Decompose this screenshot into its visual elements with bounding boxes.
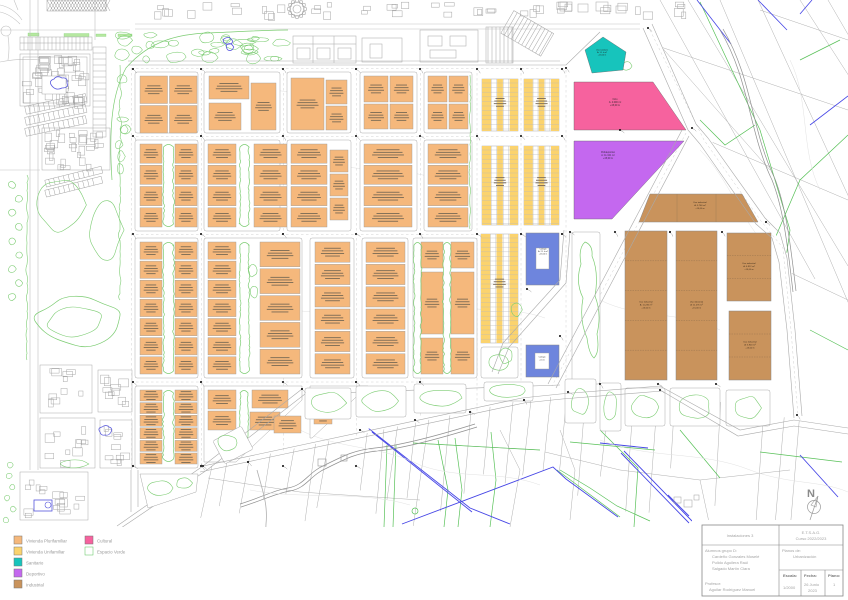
svg-text:A: 5.920 m²: A: 5.920 m² bbox=[744, 344, 756, 347]
svg-text:Fecha:: Fecha: bbox=[804, 573, 817, 578]
svg-text:A: 6.912 m²: A: 6.912 m² bbox=[743, 265, 755, 268]
svg-text:1/2000: 1/2000 bbox=[783, 585, 796, 590]
svg-text:Curso 2022/2023: Curso 2022/2023 bbox=[796, 536, 827, 541]
svg-text:Uso industrial: Uso industrial bbox=[743, 341, 757, 344]
svg-text:+15,00 m: +15,00 m bbox=[598, 55, 607, 57]
svg-text:26 Junio: 26 Junio bbox=[804, 582, 820, 587]
svg-text:+15,00 m: +15,00 m bbox=[744, 269, 753, 271]
svg-text:Espacio Verde: Espacio Verde bbox=[97, 550, 126, 555]
svg-text:A: 5.746 m²: A: 5.746 m² bbox=[694, 204, 706, 207]
svg-text:Uso sanitario: Uso sanitario bbox=[596, 48, 609, 51]
svg-text:Sanitario: Sanitario bbox=[26, 561, 44, 566]
svg-text:Aguilar Rodríguez Manuel: Aguilar Rodríguez Manuel bbox=[709, 587, 755, 592]
svg-text:+15,00 m: +15,00 m bbox=[610, 104, 620, 107]
svg-text:+15,00 m: +15,00 m bbox=[695, 208, 704, 210]
svg-text:A: 11.276 m²: A: 11.276 m² bbox=[690, 304, 703, 307]
svg-text:+15,00 m: +15,00 m bbox=[692, 307, 701, 309]
svg-text:Cardeño Gonzales Moselé: Cardeño Gonzales Moselé bbox=[712, 554, 760, 559]
svg-text:Planos de:: Planos de: bbox=[782, 548, 801, 553]
svg-text:Instalaciones 3: Instalaciones 3 bbox=[727, 533, 754, 538]
svg-text:A: 1.1 k m²: A: 1.1 k m² bbox=[597, 51, 607, 54]
svg-text:Uso industrial: Uso industrial bbox=[693, 201, 707, 204]
svg-text:Uso industrial: Uso industrial bbox=[639, 301, 653, 304]
svg-text:Escala:: Escala: bbox=[783, 573, 797, 578]
svg-text:Industrial: Industrial bbox=[26, 583, 44, 588]
svg-text:E.T.S.A.G.: E.T.S.A.G. bbox=[802, 530, 821, 535]
svg-text:Urbanización: Urbanización bbox=[793, 554, 816, 559]
svg-text:N: N bbox=[807, 488, 815, 500]
svg-text:Pulido Aguilera Raúl: Pulido Aguilera Raúl bbox=[712, 560, 748, 565]
svg-text:Uso industrial: Uso industrial bbox=[742, 262, 756, 265]
svg-text:+15,00 m: +15,00 m bbox=[745, 347, 754, 349]
svg-text:Uso industrial: Uso industrial bbox=[690, 301, 704, 304]
svg-text:Plano:: Plano: bbox=[828, 573, 840, 578]
svg-text:+15,00 m: +15,00 m bbox=[603, 157, 613, 160]
svg-text:2023: 2023 bbox=[808, 588, 818, 593]
svg-text:A: 2.1 k m²: A: 2.1 k m² bbox=[538, 250, 548, 253]
svg-text:Vivienda Unifamiliar: Vivienda Unifamiliar bbox=[26, 550, 65, 555]
svg-text:+15,00 m: +15,00 m bbox=[539, 254, 548, 256]
svg-text:Profesor:: Profesor: bbox=[705, 581, 721, 586]
svg-text:Salgado Martín Clara: Salgado Martín Clara bbox=[712, 566, 751, 571]
svg-text:A: 11.235 m²: A: 11.235 m² bbox=[640, 304, 653, 307]
svg-text:+15 m: +15 m bbox=[539, 359, 545, 361]
svg-text:Vivienda Plurifamiliar: Vivienda Plurifamiliar bbox=[26, 539, 67, 544]
svg-text:Deportivo: Deportivo bbox=[26, 572, 45, 577]
svg-text:Cultural: Cultural bbox=[97, 539, 112, 544]
svg-text:+15,00 m: +15,00 m bbox=[641, 307, 650, 309]
svg-text:Alumnos grupo D:: Alumnos grupo D: bbox=[705, 548, 737, 553]
